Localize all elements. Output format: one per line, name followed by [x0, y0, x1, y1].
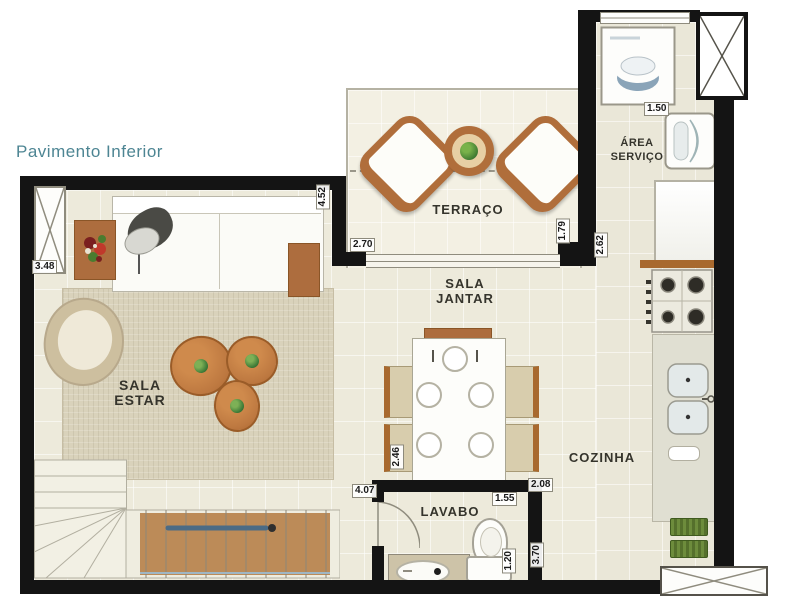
plate	[442, 346, 468, 372]
laundry-tank	[600, 26, 676, 106]
counter-edge	[640, 260, 716, 268]
wall	[20, 580, 662, 594]
fridge	[654, 180, 716, 264]
dish-rack	[670, 518, 708, 536]
toilet-bowl-inner	[480, 527, 502, 557]
wall	[372, 546, 384, 594]
drain-mark	[403, 570, 412, 572]
dim-1-79: 1.79	[556, 218, 570, 243]
staircase	[34, 452, 340, 580]
wall	[714, 100, 734, 568]
sofa-cushion-divider	[219, 213, 220, 289]
window-kitchen	[660, 566, 768, 596]
side-table-right	[288, 243, 320, 297]
dim-1-20: 1.20	[502, 548, 516, 573]
pouf-plant	[229, 398, 244, 413]
cutlery-mark	[432, 350, 434, 362]
terrace-sliding-door	[366, 254, 560, 268]
dim-1-50: 1.50	[644, 102, 669, 116]
dim-1-55: 1.55	[492, 492, 517, 506]
shaft	[696, 12, 748, 100]
dim-2-46: 2.46	[390, 444, 404, 469]
wall	[578, 10, 596, 266]
wall	[528, 480, 542, 594]
floor-plan: Pavimento Inferior SALA ESTAR TERRAÇO	[0, 0, 800, 600]
dining-chair-right-2	[504, 424, 539, 472]
wall	[332, 252, 366, 266]
room-label-area-servico: ÁREA SERVIÇO	[598, 136, 676, 164]
plate	[468, 432, 494, 458]
plate	[416, 432, 442, 458]
dish-rack	[670, 540, 708, 558]
dim-4-52: 4.52	[316, 184, 330, 209]
dim-2-08: 2.08	[528, 478, 553, 492]
page-title: Pavimento Inferior	[16, 142, 163, 162]
plate	[416, 382, 442, 408]
dim-2-70: 2.70	[350, 238, 375, 252]
wall	[20, 176, 346, 190]
dim-4-07: 4.07	[352, 484, 377, 498]
dim-3-70: 3.70	[530, 542, 544, 567]
dim-3-48: 3.48	[32, 260, 57, 274]
soap-dish	[668, 446, 700, 461]
room-label-sala-jantar: SALA JANTAR	[420, 276, 510, 306]
stove	[646, 268, 714, 334]
pouf-plant	[244, 353, 260, 369]
dining-chair-right-1	[504, 366, 539, 418]
room-label-sala-estar: SALA ESTAR	[98, 378, 182, 408]
room-label-lavabo: LAVABO	[408, 504, 492, 519]
plate	[468, 382, 494, 408]
room-label-cozinha: COZINHA	[558, 450, 646, 465]
double-sink	[662, 360, 716, 440]
cutlery-mark	[476, 350, 478, 362]
terrace-table	[444, 126, 494, 176]
wall	[20, 176, 34, 594]
room-label-terraco: TERRAÇO	[416, 202, 520, 217]
side-table-flowers	[74, 220, 116, 280]
wall	[378, 480, 536, 492]
terrace-table-plant	[460, 142, 478, 160]
dim-2-62: 2.62	[594, 232, 608, 257]
window-service	[600, 12, 690, 24]
pouf-plant	[192, 357, 209, 374]
faucet	[434, 568, 441, 575]
